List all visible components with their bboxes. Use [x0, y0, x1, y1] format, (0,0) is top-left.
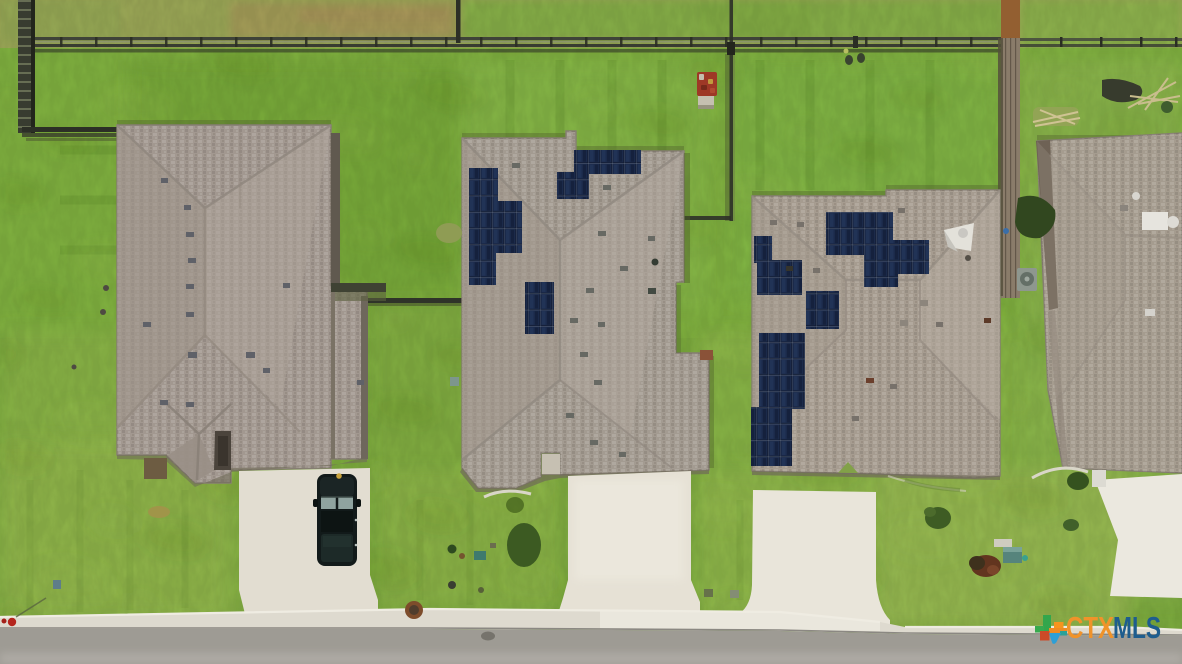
- svg-text:MLS: MLS: [1113, 610, 1161, 645]
- svg-text:CTX: CTX: [1066, 610, 1114, 645]
